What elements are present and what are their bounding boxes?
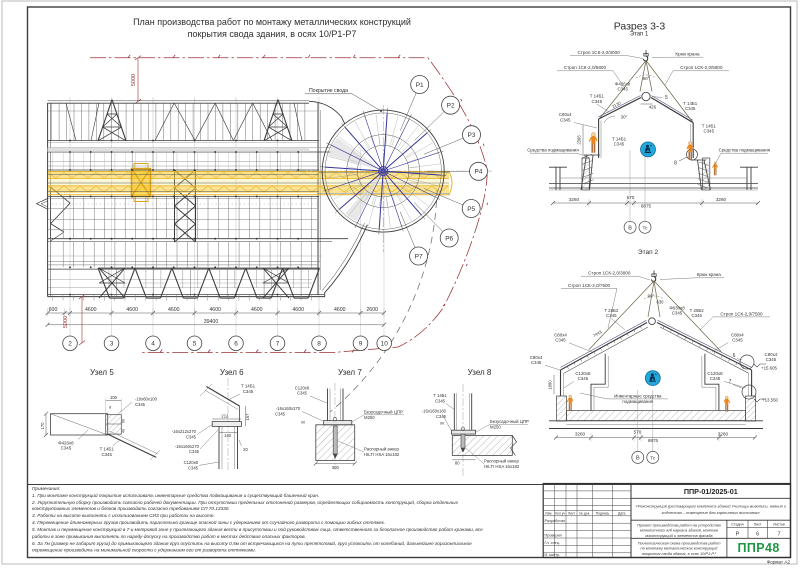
svg-text:С345: С345 <box>617 87 628 92</box>
svg-text:40: 40 <box>122 429 126 433</box>
svg-text:80: 80 <box>455 461 460 466</box>
svg-text:7: 7 <box>276 341 280 348</box>
svg-text:600: 600 <box>49 307 58 313</box>
svg-text:подмащивания: подмащивания <box>622 399 653 404</box>
svg-text:3260: 3260 <box>569 197 580 202</box>
svg-text:90: 90 <box>301 421 305 425</box>
svg-text:Проверил: Проверил <box>545 534 563 538</box>
svg-text:Листов: Листов <box>773 522 785 526</box>
svg-text:С345: С345 <box>531 360 542 365</box>
svg-text:Р6: Р6 <box>445 235 453 242</box>
svg-text:монолитного ж/б каркаса здания: монолитного ж/б каркаса здания, монтаж <box>640 528 718 533</box>
svg-text:3260: 3260 <box>716 197 727 202</box>
svg-text:90: 90 <box>440 422 444 426</box>
svg-text:5. Монтаж и перемещение констр: 5. Монтаж и перемещение конструкций в 7-… <box>32 526 483 532</box>
svg-text:Р2: Р2 <box>447 103 455 110</box>
svg-text:Крюк крана: Крюк крана <box>697 272 722 277</box>
svg-text:Р1: Р1 <box>416 82 424 89</box>
svg-text:М250: М250 <box>490 425 501 430</box>
svg-text:Строп 1СК-2,0/5800: Строп 1СК-2,0/5800 <box>564 65 607 70</box>
svg-text:С345: С345 <box>685 106 696 111</box>
svg-text:Примечания:: Примечания: <box>32 486 61 491</box>
svg-text:по монтажу металлических конст: по монтажу металлических конструкций <box>641 546 719 551</box>
svg-text:В: В <box>628 225 632 231</box>
svg-text:60: 60 <box>122 419 126 423</box>
svg-text:С345: С345 <box>578 376 589 381</box>
svg-text:7: 7 <box>777 531 780 537</box>
svg-text:В: В <box>636 456 640 462</box>
svg-text:Стадия: Стадия <box>731 522 743 526</box>
svg-text:С345: С345 <box>560 117 571 122</box>
svg-text:426: 426 <box>649 105 657 110</box>
svg-text:С345: С345 <box>691 313 702 318</box>
svg-text:4: 4 <box>151 341 155 348</box>
svg-text:С345: С345 <box>592 99 603 104</box>
svg-text:ППР-01/2025-01: ППР-01/2025-01 <box>684 487 738 496</box>
svg-text:м/конструкций и элементов фаса: м/конструкций и элементов фасада <box>645 533 713 538</box>
svg-text:-16х160х270: -16х160х270 <box>276 406 301 411</box>
svg-text:Т 14Б1: Т 14Б1 <box>100 447 115 452</box>
svg-text:5: 5 <box>665 95 668 101</box>
svg-text:С345: С345 <box>436 414 447 419</box>
svg-text:Строп 1СК-2,0/5800: Строп 1СК-2,0/5800 <box>680 65 723 70</box>
svg-text:8: 8 <box>674 161 677 167</box>
svg-text:5: 5 <box>193 341 197 348</box>
svg-text:Безусадочный ЦПР: Безусадочный ЦПР <box>490 419 529 424</box>
svg-text:2. Укрупнительную сборку произ: 2. Укрупнительную сборку производить сог… <box>31 499 459 505</box>
svg-text:5000: 5000 <box>63 316 69 328</box>
svg-text:конструктивных элементов и бло: конструктивных элементов и блоков произв… <box>32 506 230 511</box>
svg-text:С345: С345 <box>275 411 286 416</box>
svg-text:4600: 4600 <box>334 307 346 313</box>
svg-text:3260: 3260 <box>575 432 586 437</box>
svg-text:С345: С345 <box>243 389 254 394</box>
svg-text:С345: С345 <box>614 142 625 147</box>
svg-text:С345: С345 <box>186 434 197 439</box>
svg-text:№ док.: № док. <box>579 512 590 516</box>
svg-text:167: 167 <box>245 413 250 421</box>
svg-text:С345: С345 <box>188 465 199 470</box>
svg-text:М250: М250 <box>364 415 375 420</box>
svg-text:7: 7 <box>729 379 732 385</box>
svg-text:Строп 1СК-2,0/3000: Строп 1СК-2,0/3000 <box>588 271 631 276</box>
svg-text:100: 100 <box>110 395 118 400</box>
svg-text:зодчества – помещение для карт: зодчества – помещение для картинных выст… <box>661 510 761 515</box>
svg-text:Безусадочный ЦПР: Безусадочный ЦПР <box>364 410 403 415</box>
svg-text:Р5: Р5 <box>467 206 475 213</box>
svg-text:Крюк крана: Крюк крана <box>675 51 700 56</box>
svg-text:Строп 1СК-2,0/3000: Строп 1СК-2,0/3000 <box>577 50 620 55</box>
svg-text:-16х160х160: -16х160х160 <box>422 409 447 414</box>
svg-text:8: 8 <box>317 341 321 348</box>
svg-text:Этап 2: Этап 2 <box>638 249 659 256</box>
svg-text:С345: С345 <box>704 129 715 134</box>
svg-text:Кол.уч: Кол.уч <box>555 512 565 516</box>
svg-text:С345: С345 <box>297 391 308 396</box>
svg-text:Узел 7: Узел 7 <box>338 368 362 377</box>
svg-text:3260: 3260 <box>718 432 729 437</box>
svg-text:Средства подмащивания: Средства подмащивания <box>719 148 771 153</box>
svg-text:Этап 1: Этап 1 <box>630 32 649 38</box>
svg-text:С345: С345 <box>135 402 146 407</box>
svg-text:Тс: Тс <box>642 225 648 231</box>
svg-text:Покрытие свода: Покрытие свода <box>309 88 348 94</box>
svg-text:С345: С345 <box>435 398 446 403</box>
svg-text:4600: 4600 <box>168 307 180 313</box>
svg-text:С345: С345 <box>189 449 200 454</box>
svg-text:Разработал: Разработал <box>545 519 566 523</box>
svg-text:Распорный анкер: Распорный анкер <box>364 447 400 452</box>
svg-text:8: 8 <box>109 406 111 410</box>
svg-text:Узел 5: Узел 5 <box>90 368 114 377</box>
svg-text:С345: С345 <box>101 452 112 457</box>
svg-text:6. За 7м (размер не габарит гр: 6. За 7м (размер не габарит груза) до пр… <box>32 540 472 546</box>
svg-text:Т 14Б1: Т 14Б1 <box>241 384 256 389</box>
svg-text:30°: 30° <box>621 114 628 119</box>
svg-text:4600: 4600 <box>251 307 263 313</box>
svg-text:90°: 90° <box>643 76 650 81</box>
svg-text:HILTI HSA 16х182: HILTI HSA 16х182 <box>484 464 520 469</box>
svg-text:2600: 2600 <box>366 307 378 313</box>
svg-text:покрытия свода здания, в осях: покрытия свода здания, в осях 10/Р1-Р7 <box>642 551 717 556</box>
svg-text:140: 140 <box>224 433 232 438</box>
svg-text:Лист: Лист <box>568 512 576 516</box>
svg-text:4600: 4600 <box>292 307 304 313</box>
svg-text:5000: 5000 <box>131 74 137 86</box>
svg-text:Изм.: Изм. <box>545 512 552 516</box>
svg-text:Р4: Р4 <box>475 169 483 176</box>
svg-text:С345: С345 <box>732 338 743 343</box>
svg-text:Ф426х8: Ф426х8 <box>58 440 74 445</box>
svg-text:Распорный анкер: Распорный анкер <box>484 459 520 464</box>
svg-text:6: 6 <box>756 531 759 537</box>
svg-text:перемещение производить на мин: перемещение производить на минимальной с… <box>32 546 256 552</box>
svg-text:покрытия свода здания, в осях: покрытия свода здания, в осях 10/Р1-Р7 <box>188 29 357 39</box>
svg-text:6875: 6875 <box>641 204 652 209</box>
svg-text:Строп 1СК-2,0/7500: Строп 1СК-2,0/7500 <box>568 283 611 288</box>
svg-text:+13.550: +13.550 <box>762 398 779 403</box>
svg-text:300: 300 <box>332 465 340 470</box>
svg-text:Гл. спец.: Гл. спец. <box>545 541 560 545</box>
svg-text:Формат А2: Формат А2 <box>767 560 791 565</box>
svg-text:+15.605: +15.605 <box>761 365 778 370</box>
svg-text:Подпись: Подпись <box>596 512 610 516</box>
svg-text:С345: С345 <box>61 446 72 451</box>
svg-text:10: 10 <box>381 341 389 348</box>
svg-text:работы в зоне примыкания выпол: работы в зоне примыкания выполнять по на… <box>31 533 306 539</box>
svg-text:6875: 6875 <box>648 438 659 443</box>
svg-text:2: 2 <box>68 341 72 348</box>
svg-text:С345: С345 <box>710 376 721 381</box>
svg-text:С345: С345 <box>606 313 617 318</box>
svg-text:Тс: Тс <box>650 456 656 462</box>
svg-text:90°: 90° <box>648 294 655 299</box>
svg-text:1890: 1890 <box>548 380 553 390</box>
svg-text:Р7: Р7 <box>415 253 423 260</box>
svg-text:Строп 1СК-2,0/7500: Строп 1СК-2,0/7500 <box>720 311 763 316</box>
svg-text:39400: 39400 <box>204 319 219 325</box>
svg-text:HILTI HSA 16х182: HILTI HSA 16х182 <box>364 452 400 457</box>
svg-text:ППР48: ППР48 <box>737 541 779 555</box>
svg-text:Р3: Р3 <box>468 132 476 139</box>
svg-text:-10х60х100: -10х60х100 <box>135 397 158 402</box>
svg-text:170: 170 <box>40 422 45 430</box>
svg-text:«Реконструкция (реставрация) к: «Реконструкция (реставрация) комплекса з… <box>636 504 787 509</box>
svg-text:4600: 4600 <box>126 307 138 313</box>
svg-text:Р: Р <box>736 531 740 537</box>
svg-text:Проект производства работ на у: Проект производства работ на устройство <box>637 522 722 527</box>
svg-text:4. Перемещение длинномерных гр: 4. Перемещение длинномерных грузов произ… <box>32 519 385 525</box>
svg-text:4600: 4600 <box>85 307 97 313</box>
svg-text:570: 570 <box>627 195 635 200</box>
svg-text:9: 9 <box>359 341 363 348</box>
svg-text:Н. контр.: Н. контр. <box>545 553 561 557</box>
svg-text:570: 570 <box>634 430 642 435</box>
svg-text:2395: 2395 <box>577 135 582 145</box>
svg-text:Средства подмащивания: Средства подмащивания <box>527 148 579 153</box>
svg-text:Технологическая схема производ: Технологическая схема производства работ <box>638 540 722 545</box>
svg-text:20: 20 <box>243 447 248 452</box>
svg-text:С345: С345 <box>555 338 566 343</box>
svg-text:Дата: Дата <box>618 512 626 516</box>
svg-text:Инвентарные средства: Инвентарные средства <box>614 393 662 398</box>
svg-text:212: 212 <box>221 413 229 418</box>
svg-text:630: 630 <box>657 300 665 305</box>
svg-text:1. При монтаже конструкций пок: 1. При монтаже конструкций покрытия испо… <box>32 492 319 498</box>
svg-text:С345: С345 <box>672 311 683 316</box>
svg-text:3: 3 <box>110 341 114 348</box>
svg-text:Узел 8: Узел 8 <box>468 368 492 377</box>
svg-text:4600: 4600 <box>209 307 221 313</box>
svg-text:С345: С345 <box>766 357 777 362</box>
svg-text:Лист: Лист <box>754 522 762 526</box>
svg-text:Узел 6: Узел 6 <box>220 368 244 377</box>
svg-text:3. Работы на высоте выполнять: 3. Работы на высоте выполнять с использо… <box>32 513 215 518</box>
svg-text:6: 6 <box>733 353 736 359</box>
svg-text:План производства работ по мон: План производства работ по монтажу метал… <box>133 17 411 27</box>
svg-text:6: 6 <box>234 341 238 348</box>
